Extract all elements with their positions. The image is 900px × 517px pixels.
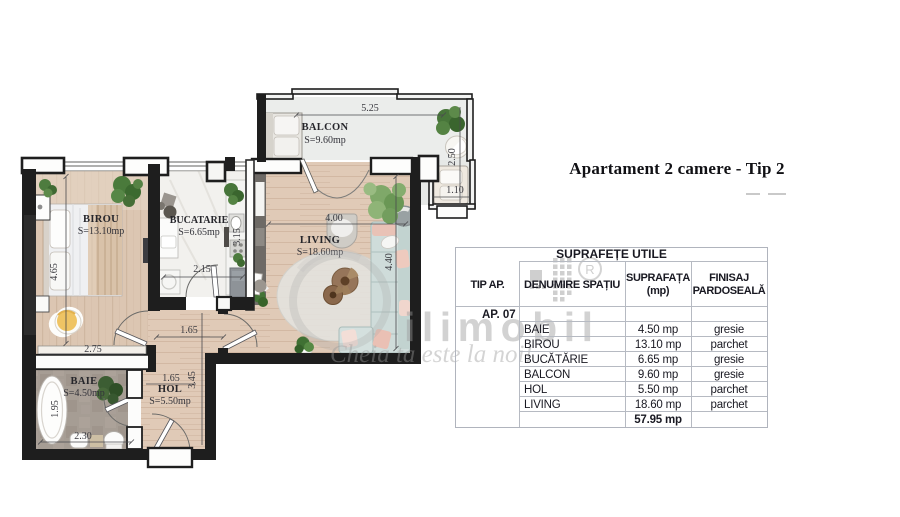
svg-text:4.00: 4.00 — [325, 213, 343, 224]
svg-text:S=4.50mp: S=4.50mp — [63, 388, 104, 399]
svg-text:S=13.10mp: S=13.10mp — [78, 226, 124, 237]
svg-text:2.75: 2.75 — [84, 344, 102, 355]
svg-text:S=6.65mp: S=6.65mp — [178, 227, 219, 238]
svg-text:BALCON: BALCON — [302, 122, 349, 133]
svg-text:HOL: HOL — [158, 384, 182, 395]
svg-text:2.50: 2.50 — [447, 148, 458, 166]
svg-text:5.25: 5.25 — [361, 103, 379, 114]
svg-text:S=5.50mp: S=5.50mp — [149, 396, 190, 407]
svg-text:BUCATARIE: BUCATARIE — [170, 215, 229, 226]
svg-text:2.15: 2.15 — [193, 264, 211, 275]
svg-text:BIROU: BIROU — [83, 214, 119, 225]
svg-text:4.65: 4.65 — [49, 263, 60, 281]
svg-text:BAIE: BAIE — [71, 376, 98, 387]
svg-text:1.65: 1.65 — [162, 373, 180, 384]
svg-text:1.95: 1.95 — [50, 400, 61, 418]
svg-text:3.15: 3.15 — [232, 228, 243, 246]
svg-text:1.65: 1.65 — [180, 325, 198, 336]
svg-text:3.45: 3.45 — [187, 371, 198, 389]
svg-text:S=9.60mp: S=9.60mp — [304, 135, 345, 146]
svg-text:1.10: 1.10 — [446, 185, 464, 196]
svg-text:2.30: 2.30 — [74, 431, 92, 442]
svg-text:LIVING: LIVING — [300, 235, 340, 246]
svg-text:4.40: 4.40 — [384, 253, 395, 271]
